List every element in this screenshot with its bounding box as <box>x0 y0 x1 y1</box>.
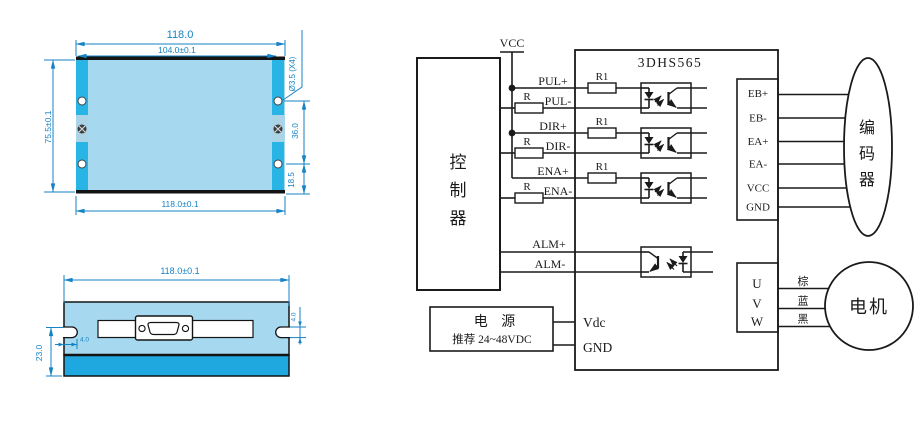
signal-label-dir-plus: DIR+ <box>539 119 567 133</box>
motor-pin-label: W <box>751 314 764 329</box>
db9-connector <box>136 316 193 340</box>
vcc-label: VCC <box>500 36 525 50</box>
encoder-label-char: 码 <box>859 145 875 163</box>
motor-label: 电机 <box>849 297 889 317</box>
r-resistor <box>515 193 543 203</box>
signal-label-pul-plus: PUL+ <box>538 74 568 88</box>
controller-label-char: 器 <box>450 209 467 228</box>
right-notch <box>276 327 290 338</box>
left-notch <box>63 327 77 338</box>
r1-label: R1 <box>596 161 609 173</box>
hole-note-label: Ø3.5 (X4) <box>288 56 297 91</box>
chip-title: 3DHS565 <box>638 55 703 70</box>
figure-canvas: 118.0 104.0±0.1 75.5±0.1 Ø3.5 (X4) 36.0 … <box>0 0 916 443</box>
dim-label: 104.0±0.1 <box>158 45 196 55</box>
optocoupler-dir <box>641 128 707 158</box>
channel-pul: PUL+ PUL- R1 R <box>500 71 707 113</box>
controller-box <box>417 58 500 290</box>
controller-label-char: 控 <box>450 153 467 172</box>
motor-pin-label: U <box>752 276 762 291</box>
driver-top-view: 118.0 104.0±0.1 75.5±0.1 Ø3.5 (X4) 36.0 … <box>43 29 310 215</box>
driver-body <box>76 59 285 191</box>
dim-notch-height: 4.0 <box>290 307 306 345</box>
gnd-label: GND <box>583 340 612 355</box>
encoder-pin-label: EA+ <box>748 136 769 148</box>
motor-section: U V W 棕 蓝 黑 电机 <box>737 262 913 350</box>
mounting-hole <box>274 97 282 105</box>
optocoupler-alm <box>641 247 713 277</box>
signal-label-alm-plus: ALM+ <box>532 237 566 251</box>
hole-callout: Ø3.5 (X4) <box>283 30 302 100</box>
r1-label: R1 <box>596 116 609 128</box>
channel-alm: ALM+ ALM- <box>500 237 713 277</box>
dim-104: 104.0±0.1 <box>78 45 276 56</box>
signal-label-ena-plus: ENA+ <box>537 164 569 178</box>
r1-resistor <box>588 173 616 183</box>
power-title: 电 源 <box>474 314 521 330</box>
encoder-connector <box>737 79 778 220</box>
mounting-hole <box>78 97 86 105</box>
dim-75-5: 75.5±0.1 <box>43 60 75 192</box>
driver-front-view: 118.0±0.1 23.0 4.0 4.0 <box>34 266 306 376</box>
dim-label: 4.0 <box>291 312 298 321</box>
channel-ena: ENA+ ENA- R1 R <box>500 161 707 203</box>
dim-label: 4.0 <box>80 337 89 344</box>
encoder-pin-label: EB- <box>749 113 767 125</box>
dim-label: 18.5 <box>287 172 296 188</box>
signal-label-ena-minus: ENA- <box>544 184 573 198</box>
driver-base-strip <box>64 355 289 376</box>
dim-18-5: 18.5 <box>286 164 310 194</box>
vdc-label: Vdc <box>583 315 606 330</box>
r-label: R <box>523 136 531 148</box>
dim-label: 118.0±0.1 <box>160 266 199 276</box>
encoder-pin-label: EB+ <box>748 88 768 100</box>
dim-23: 23.0 <box>34 328 63 377</box>
dim-label: 75.5±0.1 <box>43 110 53 143</box>
encoder-pin-label: EA- <box>749 159 768 171</box>
bottom-edge-plate <box>76 190 285 194</box>
r-resistor <box>515 148 543 158</box>
signal-label-alm-minus: ALM- <box>535 257 566 271</box>
dim-36: 36.0 <box>284 101 310 164</box>
dim-118-bottom: 118.0±0.1 <box>76 196 285 215</box>
mounting-hole <box>274 160 282 168</box>
optocoupler-pul <box>641 83 707 113</box>
r-resistor <box>515 103 543 113</box>
wire-color-label: 蓝 <box>798 295 809 308</box>
r1-resistor <box>588 83 616 93</box>
db9-screw-hole <box>182 325 188 331</box>
encoder-label-char: 器 <box>859 171 875 189</box>
encoder-section: EB+ EB- EA+ EA- VCC GND 编 码 器 <box>737 58 892 236</box>
dim-118-front: 118.0±0.1 <box>64 266 289 306</box>
controller-label-char: 制 <box>450 181 467 200</box>
wire-color-label: 棕 <box>798 274 809 288</box>
signal-label-dir-minus: DIR- <box>546 139 571 153</box>
r-label: R <box>523 181 531 193</box>
dim-label: 23.0 <box>34 344 44 361</box>
encoder-pin-label: VCC <box>747 183 770 195</box>
db9-screw-hole <box>139 325 145 331</box>
power-subtitle: 推荐 24~48VDC <box>452 332 532 346</box>
top-edge-plate <box>76 57 285 61</box>
channel-dir: DIR+ DIR- R1 R <box>500 116 707 158</box>
r1-resistor <box>588 128 616 138</box>
r1-label: R1 <box>596 71 609 83</box>
wiring-schematic: 控 制 器 VCC 3DHS565 PUL+ PUL- R1 R <box>417 36 913 370</box>
mounting-hole <box>78 160 86 168</box>
encoder-label-char: 编 <box>859 119 875 137</box>
power-supply: 电 源 推荐 24~48VDC Vdc GND <box>430 307 612 355</box>
dim-label: 36.0 <box>291 123 300 139</box>
driver-datasheet-figure: 118.0 104.0±0.1 75.5±0.1 Ø3.5 (X4) 36.0 … <box>0 0 916 443</box>
screw <box>274 125 283 134</box>
encoder-pin-label: GND <box>746 202 770 214</box>
dim-label: 118.0±0.1 <box>161 199 198 209</box>
r-label: R <box>523 91 531 103</box>
wire-color-label: 黑 <box>798 313 809 326</box>
dim-label: 118.0 <box>167 29 194 41</box>
optocoupler-ena <box>641 173 707 203</box>
signal-label-pul-minus: PUL- <box>545 94 572 108</box>
motor-pin-label: V <box>752 296 762 311</box>
screw <box>78 125 87 134</box>
